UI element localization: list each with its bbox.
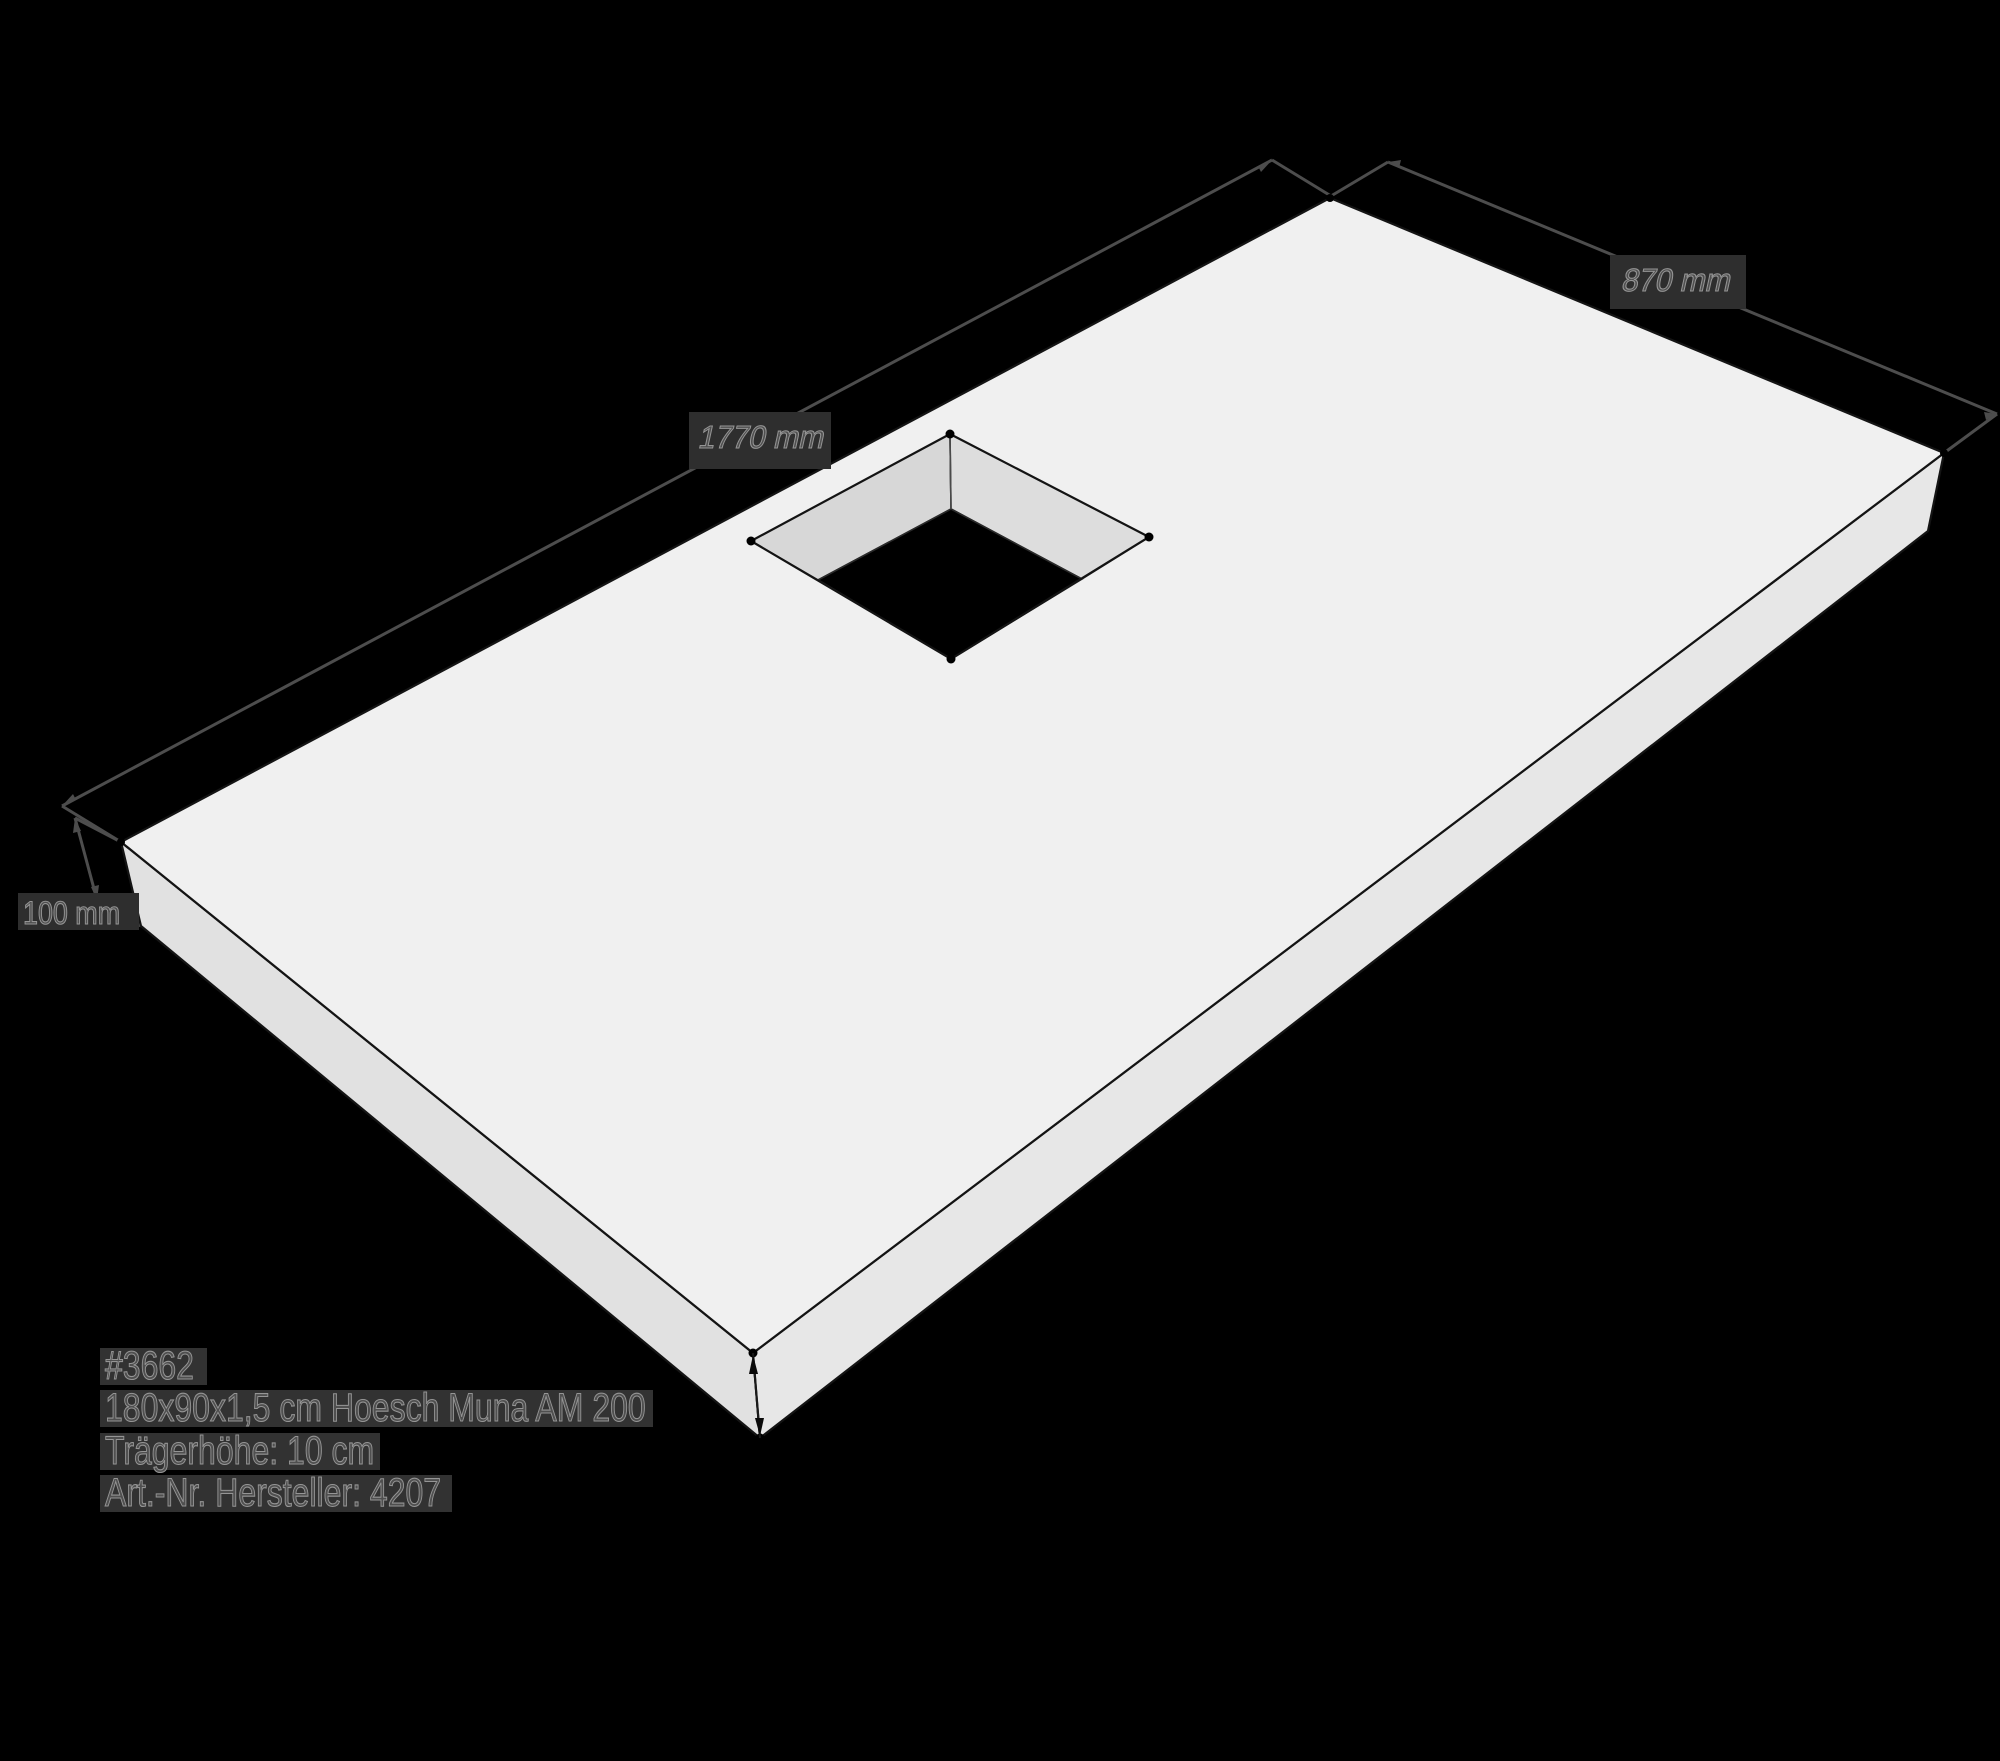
- svg-text:180x90x1,5 cm Hoesch Muna AM 2: 180x90x1,5 cm Hoesch Muna AM 200: [105, 1385, 646, 1430]
- svg-text:Trägerhöhe: 10 cm: Trägerhöhe: 10 cm: [105, 1428, 374, 1473]
- svg-text:Art.-Nr. Hersteller: 4207: Art.-Nr. Hersteller: 4207: [105, 1470, 441, 1515]
- svg-text:870 mm: 870 mm: [1619, 263, 1735, 299]
- svg-text:100 mm: 100 mm: [23, 896, 120, 932]
- svg-text:1770 mm: 1770 mm: [696, 420, 829, 456]
- svg-text:#3662: #3662: [105, 1343, 194, 1388]
